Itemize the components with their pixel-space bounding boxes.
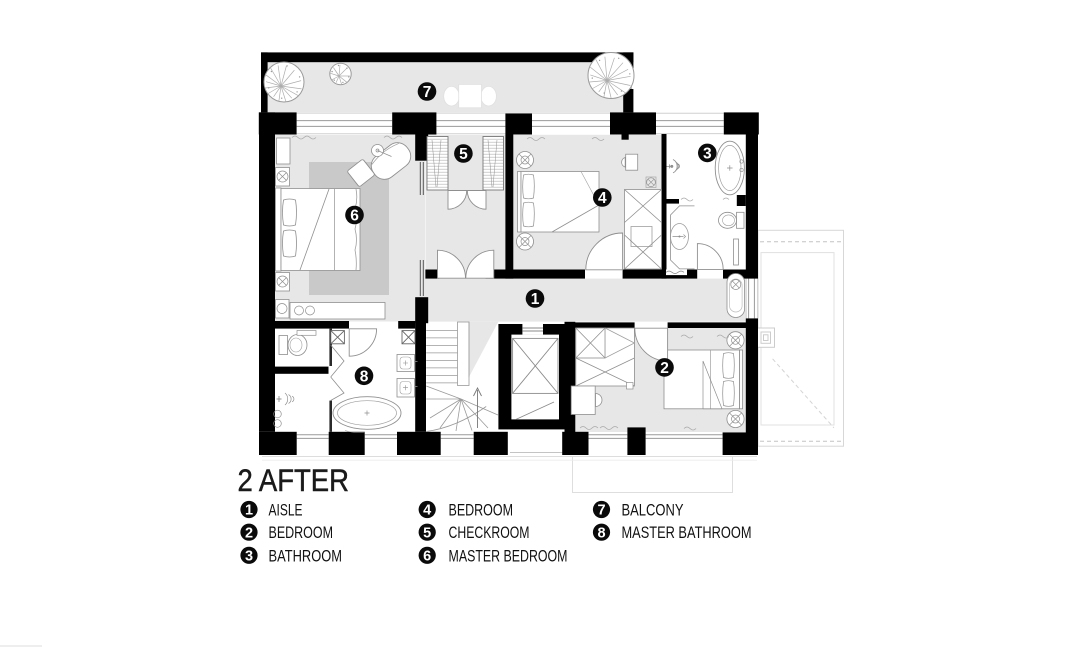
svg-text:2: 2 [660, 360, 669, 377]
svg-text:4: 4 [423, 503, 431, 519]
svg-text:8: 8 [360, 368, 369, 385]
svg-text:6: 6 [350, 208, 359, 225]
svg-text:1: 1 [531, 291, 540, 308]
svg-text:1: 1 [245, 503, 253, 519]
svg-text:2: 2 [245, 525, 253, 541]
svg-text:AISLE: AISLE [269, 501, 303, 520]
svg-text:5: 5 [423, 525, 431, 541]
svg-text:MASTER BEDROOM: MASTER BEDROOM [449, 546, 568, 565]
svg-text:BALCONY: BALCONY [622, 501, 684, 520]
svg-text:BEDROOM: BEDROOM [449, 501, 514, 520]
svg-text:3: 3 [245, 549, 253, 565]
svg-text:MASTER BATHROOM: MASTER BATHROOM [622, 523, 752, 542]
svg-text:6: 6 [423, 549, 431, 565]
svg-text:4: 4 [598, 190, 607, 207]
svg-text:CHECKROOM: CHECKROOM [449, 523, 530, 542]
svg-text:5: 5 [459, 146, 468, 163]
svg-text:7: 7 [597, 503, 605, 519]
svg-text:BEDROOM: BEDROOM [269, 523, 334, 542]
svg-text:8: 8 [597, 525, 605, 541]
svg-text:2 AFTER: 2 AFTER [238, 462, 350, 498]
svg-text:7: 7 [423, 84, 432, 101]
svg-text:BATHROOM: BATHROOM [269, 546, 343, 565]
svg-text:3: 3 [703, 146, 712, 163]
